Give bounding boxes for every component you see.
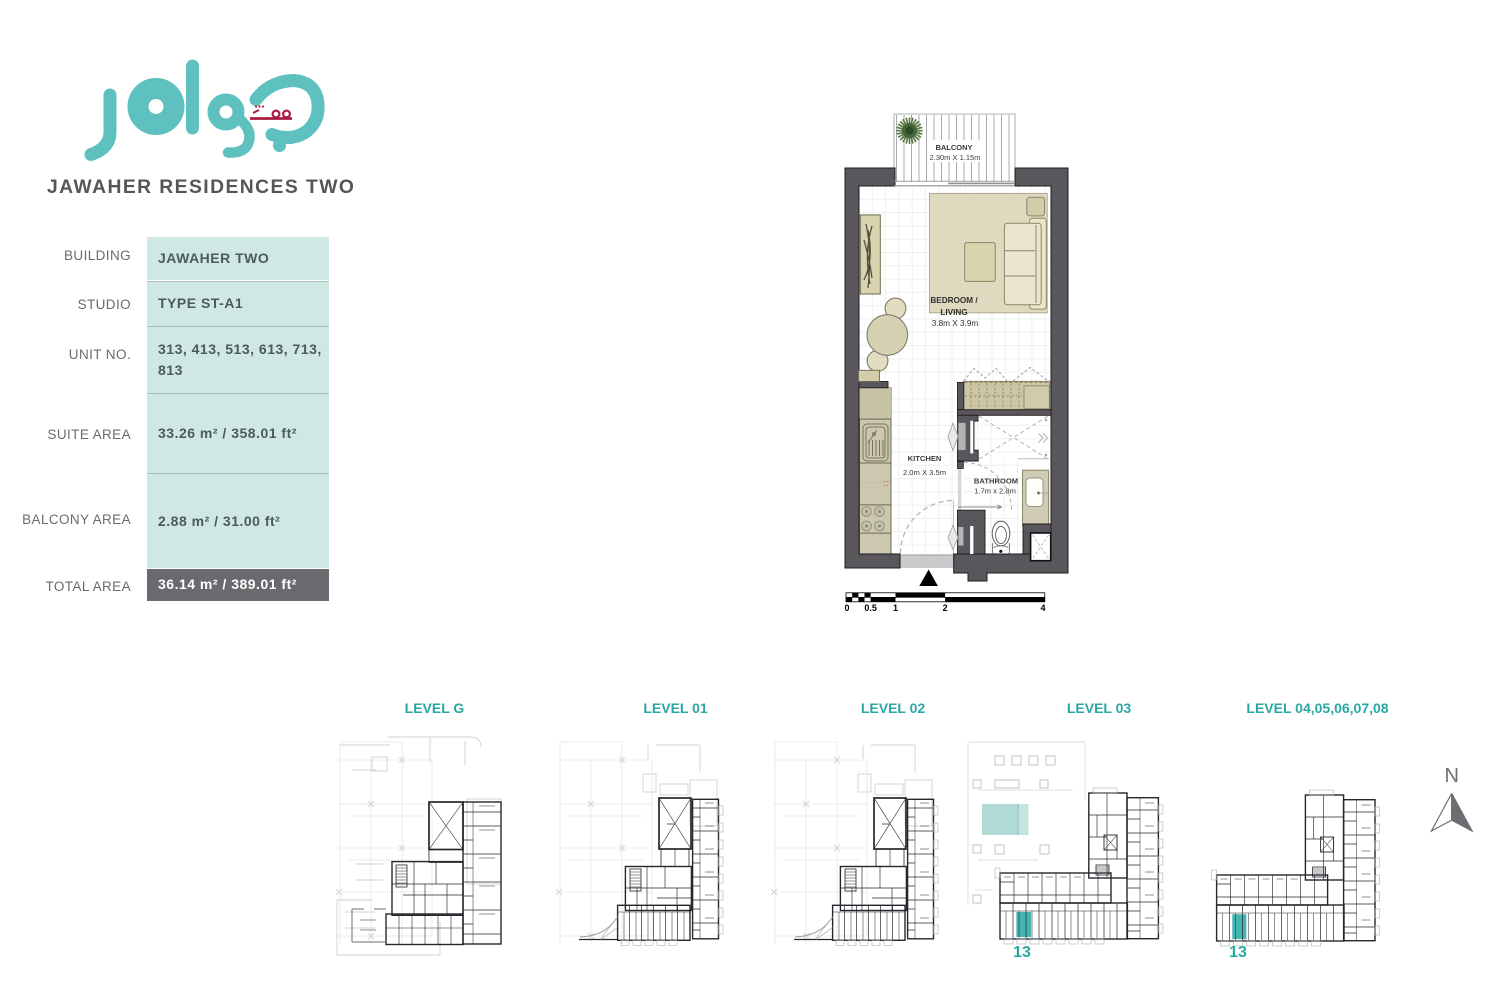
- svg-text:N: N: [1444, 765, 1458, 787]
